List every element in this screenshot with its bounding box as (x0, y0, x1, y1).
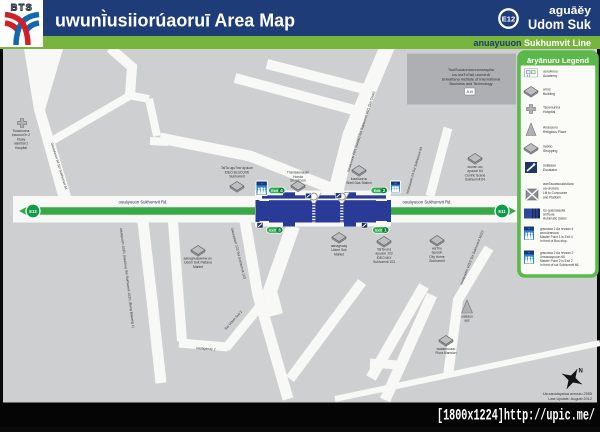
svg-text:E13: E13 (29, 209, 37, 214)
svg-text:arrns: arrns (543, 88, 551, 92)
svg-text:Exit: Exit (374, 189, 381, 193)
svg-text:Automatic Gates: Automatic Gates (543, 217, 567, 221)
svg-text:1: 1 (384, 228, 387, 234)
svg-text:E11: E11 (498, 209, 506, 214)
svg-text:ua-inaTuTaū urunxnā: ua-inaTuTaū urunxnā (452, 72, 490, 77)
svg-text:TaiTa uguTnw ayuuon: TaiTa uguTnw ayuuon (221, 166, 253, 170)
svg-text:**: ** (395, 183, 397, 185)
svg-text:Hospital: Hospital (543, 110, 555, 114)
svg-text:Last Update: August 2012: Last Update: August 2012 (548, 397, 592, 401)
svg-text:anuayuuon Sukhumvit Line: anuayuuon Sukhumvit Line (473, 38, 591, 48)
svg-text:Sukhumvit: Sukhumvit (429, 259, 444, 263)
svg-text:Exit: Exit (269, 228, 276, 232)
svg-text:ua-uruūara: ua-uruūara (543, 187, 559, 191)
svg-text:aoruAnuo: aoruAnuo (543, 70, 558, 74)
svg-text:ūaūūo: ūaūūo (543, 145, 553, 149)
svg-text:Sukhumvit 103: Sukhumvit 103 (373, 260, 395, 264)
svg-text:ouuāyuuon Sukhumvit Rd.: ouuāyuuon Sukhumvit Rd. (118, 200, 167, 205)
svg-text:Religious Place: Religious Place (543, 130, 566, 134)
svg-text:Market: Market (193, 265, 203, 269)
svg-text:Sukhumvit 64: Sukhumvit 64 (465, 178, 485, 182)
svg-text:Market: Market (334, 252, 344, 256)
svg-text:Sukhumvit: Sukhumvit (229, 175, 244, 179)
svg-text:Building: Building (543, 92, 555, 96)
svg-text:and Platform: and Platform (543, 196, 561, 200)
svg-text:in front of Bus stop.: in front of Bus stop. (540, 239, 568, 243)
svg-text:in front of soi Sukhumvit 66.: in front of soi Sukhumvit 66. (540, 263, 579, 267)
svg-text:BTS: BTS (11, 3, 34, 13)
svg-text:Shell Gas Station: Shell Gas Station (346, 181, 372, 185)
svg-text:**: ** (528, 253, 530, 255)
svg-text:4: 4 (280, 188, 283, 194)
svg-text:Hospital: Hospital (15, 146, 27, 150)
svg-text:A.B: A.B (466, 89, 473, 94)
svg-text:3: 3 (278, 228, 281, 234)
svg-text:Academy: Academy (543, 74, 557, 78)
svg-text:E12: E12 (502, 15, 516, 24)
svg-text:Udom Suk: Udom Suk (528, 16, 591, 32)
svg-text:Anauaoru: Anauaoru (543, 126, 558, 130)
svg-text:[1800x1224]http://upic.me/: [1800x1224]http://upic.me/ (437, 407, 595, 425)
svg-text:N: N (579, 369, 583, 375)
svg-text:Flora Mansion: Flora Mansion (436, 351, 457, 355)
svg-text:a b: a b (527, 73, 531, 77)
svg-text:Showroom: Showroom (290, 179, 306, 183)
svg-text:Exit: Exit (375, 228, 382, 232)
svg-text:Shopping: Shopping (543, 149, 557, 153)
svg-text:**: ** (261, 184, 263, 186)
svg-text:2: 2 (383, 188, 386, 194)
svg-text:ouuāyuuon Sukhumvit Rd.: ouuāyuuon Sukhumvit Rd. (402, 200, 451, 205)
svg-text:Exit: Exit (271, 189, 278, 193)
svg-text:ūulaiaau: ūulaiaau (543, 164, 556, 168)
svg-text:Usuusodayaiua avnnau 2555: Usuusodayaiua avnnau 2555 (543, 392, 592, 396)
svg-text:**: ** (528, 229, 530, 231)
svg-text:uwunī̀usiiorúaoruī Area Map: uwunī̀usiiorúaoruī Area Map (55, 10, 295, 31)
svg-text:Business and Technology: Business and Technology (450, 82, 493, 86)
svg-text:āryānuru Legend: āryānuru Legend (527, 58, 589, 65)
svg-text:Escalator: Escalator (543, 168, 558, 172)
svg-text:Tsownunna: Tsownunna (543, 106, 560, 110)
svg-text:ays: ays (464, 319, 469, 323)
svg-text:awnTauansuuūruūara: awnTauansuuūruūara (543, 182, 574, 186)
svg-text:Lift to Concourse: Lift to Concourse (543, 191, 567, 195)
